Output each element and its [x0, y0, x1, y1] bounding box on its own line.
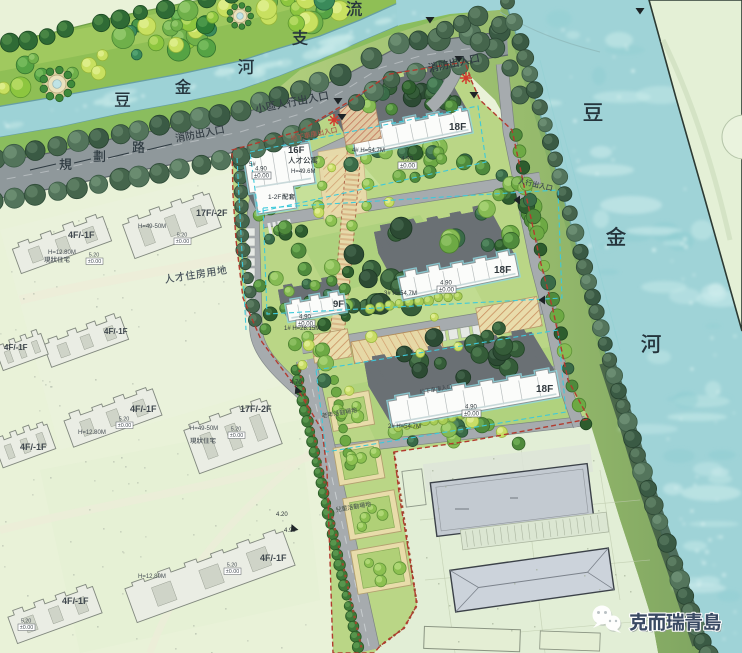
svg-text:5.20: 5.20	[89, 253, 100, 259]
svg-text:4.70: 4.70	[290, 380, 302, 386]
svg-text:4.90: 4.90	[299, 315, 311, 321]
svg-text:4F/-1F: 4F/-1F	[260, 553, 287, 563]
svg-text:4F/-1F: 4F/-1F	[20, 442, 47, 452]
svg-text:18F: 18F	[494, 265, 511, 276]
svg-text:±0.00: ±0.00	[20, 625, 33, 631]
svg-text:4.90: 4.90	[401, 157, 413, 163]
svg-text:5.20: 5.20	[119, 417, 130, 423]
svg-text:4# H=54.7M: 4# H=54.7M	[352, 148, 385, 154]
svg-text:5.20: 5.20	[231, 427, 242, 433]
svg-text:±0.00: ±0.00	[176, 239, 189, 245]
svg-text:4F/-1F: 4F/-1F	[130, 404, 157, 414]
svg-text:5.20: 5.20	[21, 619, 32, 625]
svg-text:4F/-1F: 4F/-1F	[4, 343, 28, 352]
svg-text:1-2F: 1-2F	[268, 194, 281, 201]
svg-text:4F/-1F: 4F/-1F	[104, 327, 128, 336]
svg-text:H=49-50M: H=49-50M	[138, 224, 166, 230]
svg-text:17F/-2F: 17F/-2F	[240, 404, 272, 414]
svg-text:4F/-1F: 4F/-1F	[62, 596, 89, 606]
svg-text:4.90: 4.90	[465, 405, 477, 411]
svg-text:4F/-1F: 4F/-1F	[68, 230, 95, 240]
svg-text:H=12.80M: H=12.80M	[78, 430, 106, 436]
svg-text:5.20: 5.20	[227, 563, 238, 569]
svg-text:±0.00: ±0.00	[230, 433, 243, 439]
svg-text:±0.00: ±0.00	[88, 259, 101, 265]
svg-text:±0.00: ±0.00	[226, 569, 239, 575]
svg-text:4.20: 4.20	[276, 512, 288, 518]
svg-text:H=49.6M: H=49.6M	[291, 169, 316, 175]
svg-text:H=12.80M: H=12.80M	[138, 574, 166, 580]
svg-text:5#: 5#	[249, 162, 256, 168]
svg-text:H=12.80M: H=12.80M	[48, 250, 76, 256]
svg-text:3# H=54.7M: 3# H=54.7M	[384, 291, 417, 297]
svg-text:18F: 18F	[536, 384, 553, 395]
svg-text:4.90: 4.90	[255, 167, 267, 173]
svg-text:16F: 16F	[288, 145, 305, 156]
svg-text:5.20: 5.20	[177, 233, 188, 239]
svg-text:18F: 18F	[449, 122, 466, 133]
svg-text:9F: 9F	[333, 299, 344, 310]
svg-text:±0.00: ±0.00	[439, 288, 455, 294]
svg-text:1# H=28.15M: 1# H=28.15M	[284, 326, 320, 332]
svg-text:H=49-50M: H=49-50M	[190, 426, 218, 432]
svg-text:17F/-2F: 17F/-2F	[196, 208, 228, 218]
svg-text:2# H=54.7M: 2# H=54.7M	[388, 424, 421, 430]
svg-text:4.90: 4.90	[440, 281, 452, 287]
svg-text:±0.00: ±0.00	[400, 164, 416, 170]
svg-text:±0.00: ±0.00	[254, 174, 270, 180]
svg-text:±0.00: ±0.00	[118, 423, 131, 429]
svg-text:±0.00: ±0.00	[464, 412, 480, 418]
svg-text:4.90: 4.90	[284, 528, 296, 534]
